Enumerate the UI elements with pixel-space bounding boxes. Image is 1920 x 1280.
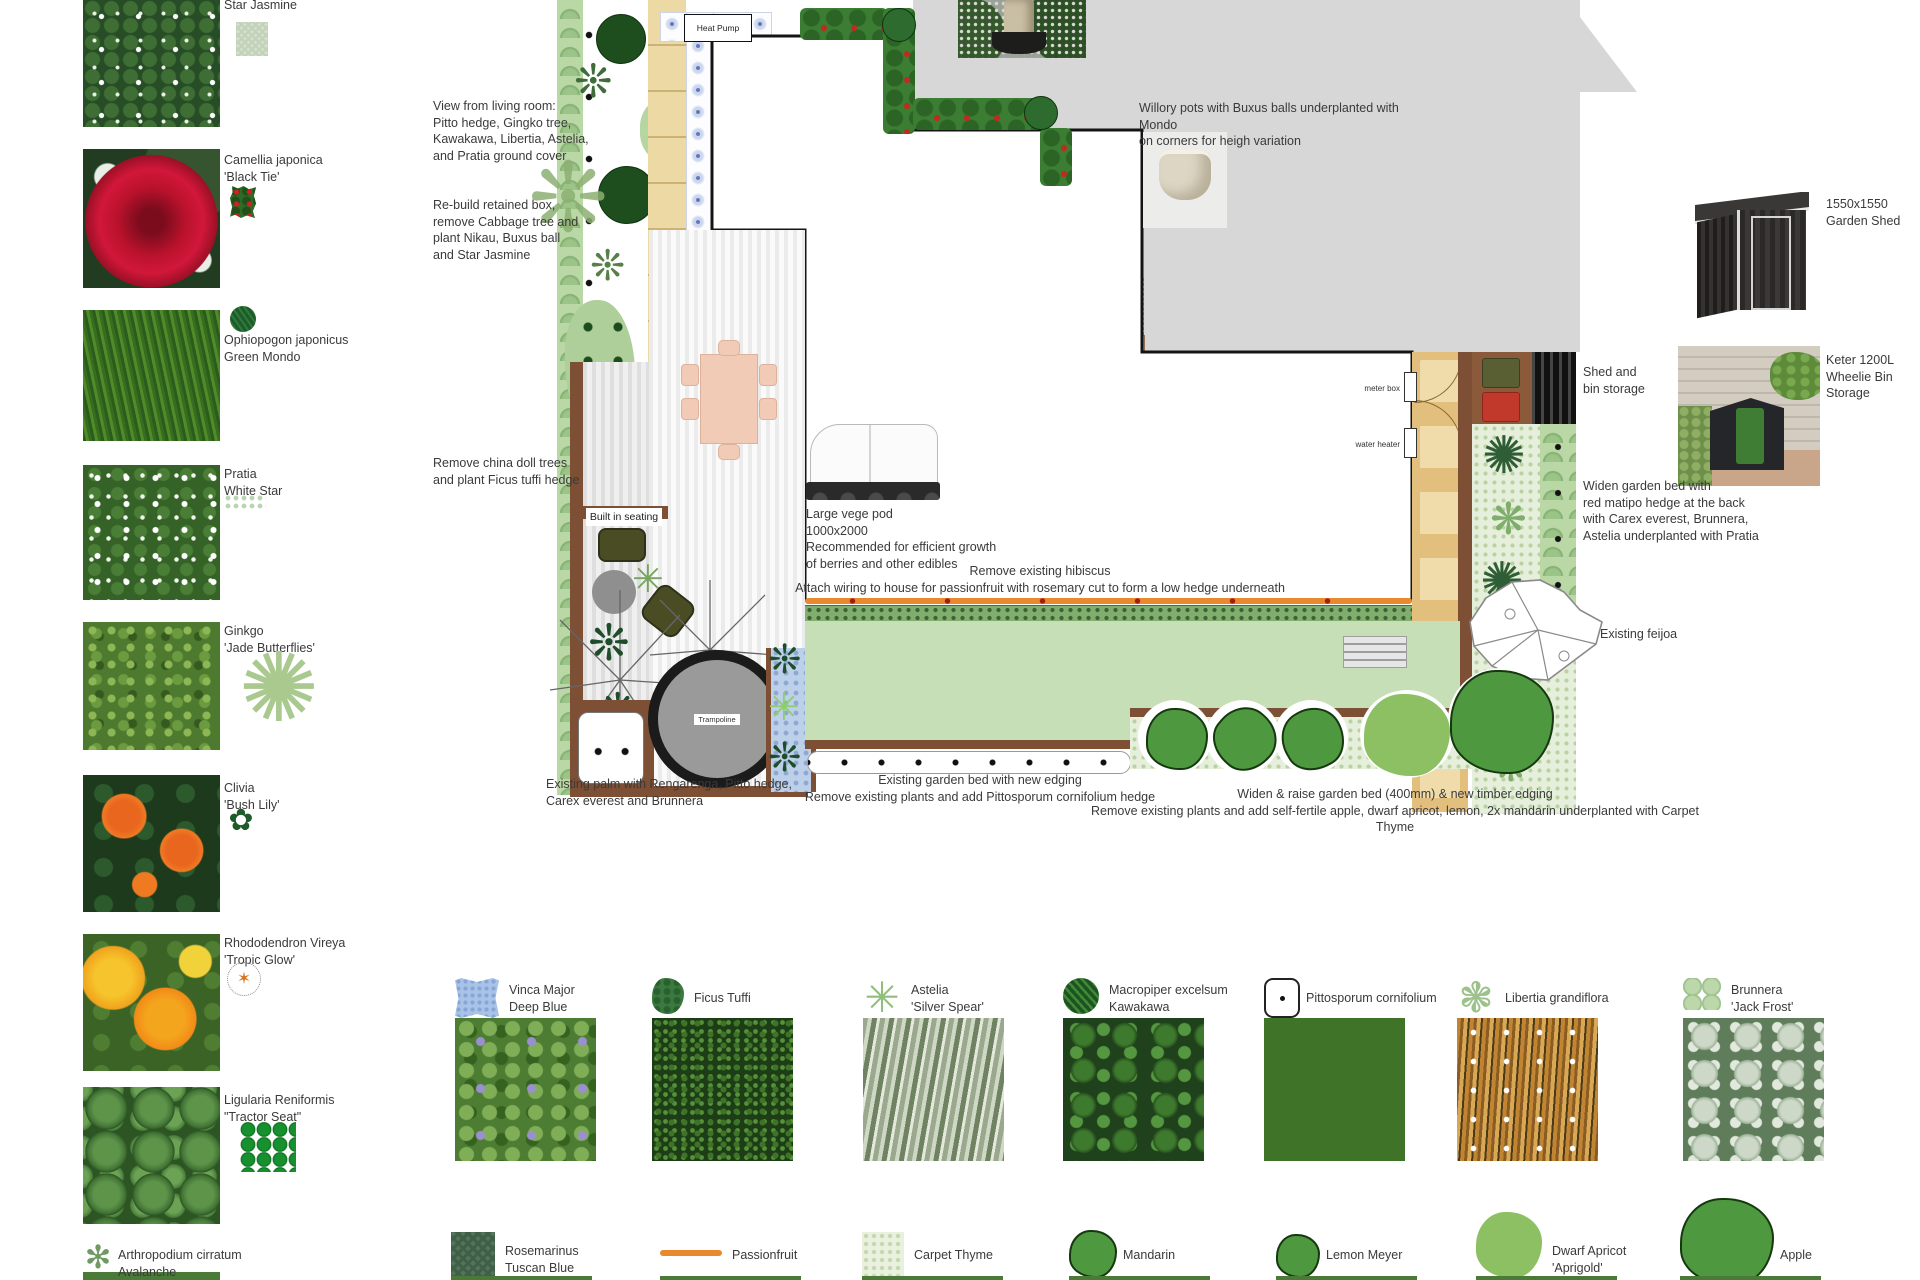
chair — [718, 444, 740, 460]
plant-photo — [83, 775, 220, 912]
planter-box — [578, 712, 644, 784]
buxus-hedge-top — [800, 8, 888, 40]
heat-pump-box: Heat Pump — [684, 14, 752, 42]
annotation-keter-label: Keter 1200L Wheelie Bin Storage — [1826, 352, 1920, 402]
legend-photo — [451, 1276, 592, 1280]
ligularia-icon — [240, 1122, 296, 1172]
chair — [681, 398, 699, 420]
legend-photo — [1276, 1276, 1417, 1280]
plant-photo — [83, 0, 220, 127]
annotation-remove-china-doll: Remove china doll trees and plant Ficus … — [433, 455, 633, 488]
annotation-widen-raise: Widen & raise garden bed (400mm) & new t… — [1080, 786, 1710, 836]
shed-roof — [1532, 352, 1576, 424]
legend-label: Rosemarinus Tuscan Blue — [505, 1243, 675, 1276]
vege-pod-base — [806, 482, 940, 500]
timber-edging — [805, 740, 1130, 749]
rosemary-swatch-icon — [451, 1232, 495, 1278]
meter-box — [1404, 372, 1417, 402]
annotation-remove-hibiscus: Remove existing hibiscus Attach wiring t… — [790, 563, 1290, 596]
pratia-swatch-icon — [224, 494, 266, 510]
trampoline-label: Trampoline — [693, 713, 740, 726]
kawakawa-icon — [1063, 978, 1099, 1014]
legend-photo — [652, 1018, 793, 1161]
plant-photo — [83, 622, 220, 750]
astelia-icon: ❋ — [1490, 498, 1527, 542]
existing-bed — [807, 751, 1131, 774]
garden-shed-photo — [1693, 192, 1813, 324]
tree-apricot-icon — [1476, 1212, 1542, 1278]
legend-label: Astelia 'Silver Spear' — [911, 982, 1081, 1015]
plant-photo — [83, 149, 220, 288]
plant-label: Ophiopogon japonicus Green Mondo — [224, 332, 374, 365]
keter-foliage — [1770, 352, 1820, 400]
astelia-icon: ✺ — [1482, 430, 1526, 482]
stone-bowl — [992, 32, 1046, 54]
annotation-widen-bed-right: Widen garden bed with red matipo hedge a… — [1583, 478, 1793, 544]
avalanche-icon: ✻ — [83, 1240, 113, 1274]
lawn-left — [805, 621, 1130, 740]
legend-label: Carpet Thyme — [914, 1247, 1084, 1264]
tree-yellow-small-icon — [1276, 1234, 1320, 1278]
steps — [1343, 636, 1407, 668]
water-heater — [1404, 428, 1417, 458]
legend-label: Pittosporum cornifolium — [1306, 990, 1476, 1007]
passionfruit-line-icon — [660, 1250, 722, 1256]
tree-apple-icon — [1680, 1198, 1774, 1280]
annotation-feijoa: Existing feijoa — [1600, 626, 1730, 643]
legend-photo — [1683, 1018, 1824, 1161]
apple-tree-icon — [1450, 670, 1554, 774]
vinca-swatch-icon — [455, 978, 499, 1018]
annotation-willory: Willory pots with Buxus balls underplant… — [1139, 100, 1439, 150]
annotation-shed-label: 1550x1550 Garden Shed — [1826, 196, 1920, 229]
annotation-shed-bin: Shed and bin storage — [1583, 364, 1703, 397]
legend-photo — [1680, 1276, 1821, 1280]
legend-photo — [862, 1276, 1003, 1280]
annotation-rebuild-retained: Re-build retained box, remove Cabbage tr… — [433, 197, 623, 263]
fern-icon: ✳ — [632, 560, 664, 598]
legend-label: Libertia grandiflora — [1505, 990, 1675, 1007]
annotation-view-living-room: View from living room: Pitto hedge, Ging… — [433, 98, 613, 164]
legend-photo — [1063, 1018, 1204, 1161]
clivia-icon: ✿ — [227, 806, 255, 834]
bin-olive — [1482, 358, 1520, 388]
passionfruit-wire — [805, 598, 1412, 604]
white-pot — [1159, 150, 1211, 200]
chair — [759, 398, 777, 420]
fern-icon: ❊ — [768, 640, 802, 680]
heat-pump-label: Heat Pump — [697, 23, 740, 33]
thyme-swatch-icon — [862, 1232, 904, 1278]
apricot-tree-icon — [1364, 694, 1450, 776]
libertia-icon: ❃ — [1457, 978, 1495, 1016]
keter-bin — [1736, 408, 1764, 464]
legend-label: Mandarin — [1123, 1247, 1293, 1264]
plant-photo — [83, 465, 220, 600]
rosemary-hedge — [805, 605, 1412, 622]
legend-label: Lemon Meyer — [1326, 1247, 1496, 1264]
mondo-icon — [230, 306, 256, 332]
legend-photo — [1476, 1276, 1617, 1280]
legend-label: Macropiper excelsum Kawakawa — [1109, 982, 1279, 1015]
chair — [681, 364, 699, 386]
astelia-icon: ✳ — [768, 688, 800, 726]
mandarin-tree-icon — [1146, 708, 1208, 770]
buxus-hedge-mid-v — [1040, 128, 1072, 186]
swatch-light-icon — [236, 22, 268, 56]
built-in-seating-label: Built in seating — [586, 508, 662, 526]
garden-plan-page: bench seat ❊ ❊ ❊ Heat Pump — [0, 0, 1920, 1280]
buxus-ball-icon — [882, 8, 916, 42]
fern-icon: ❊ — [588, 618, 630, 668]
legend-photo — [863, 1018, 1004, 1161]
plant-label: Arthropodium cirratum Avalanche — [118, 1247, 268, 1280]
legend-photo — [1264, 1018, 1405, 1161]
tree-orange-small-icon — [1069, 1230, 1117, 1278]
feijoa-outline — [1452, 578, 1612, 686]
willory-pot-photo — [958, 0, 1086, 58]
brunnera-icon — [1683, 978, 1721, 1010]
keter-plants — [1678, 406, 1712, 486]
plant-label: Star Jasmine — [224, 0, 374, 14]
bin-red — [1482, 392, 1520, 422]
legend-photo — [455, 1018, 596, 1161]
shed-side-panel — [1697, 214, 1737, 319]
plant-label: Ligularia Reniformis "Tractor Seat" — [224, 1092, 374, 1125]
plant-photo — [83, 1087, 220, 1224]
legend-label: Ficus Tuffi — [694, 990, 864, 1007]
vireya-icon: ✶ — [227, 962, 261, 996]
plant-label: Camellia japonica 'Black Tie' — [224, 152, 374, 185]
legend-photo — [1069, 1276, 1210, 1280]
legend-label: Brunnera 'Jack Frost' — [1731, 982, 1901, 1015]
meter-box-label: meter box — [1342, 384, 1400, 393]
legend-label: Apple — [1780, 1247, 1920, 1264]
dining-table — [700, 354, 758, 444]
sunburst-icon: ✺ — [236, 646, 322, 732]
matipo-hedge — [1540, 424, 1576, 604]
water-heater-label: water heater — [1330, 440, 1400, 449]
plant-photo — [83, 310, 220, 441]
shed-door — [1751, 216, 1791, 310]
camellia-icon — [230, 186, 256, 218]
legend-photo — [1457, 1018, 1598, 1161]
built-in-seating-text: Built in seating — [590, 511, 658, 523]
chair — [759, 364, 777, 386]
buxus-ball-icon — [1024, 96, 1058, 130]
legend-photo — [660, 1276, 801, 1280]
plant-photo — [83, 934, 220, 1071]
pitto-square-icon — [1264, 978, 1300, 1018]
chair — [718, 340, 740, 356]
astelia-icon: ✳ — [863, 978, 901, 1016]
